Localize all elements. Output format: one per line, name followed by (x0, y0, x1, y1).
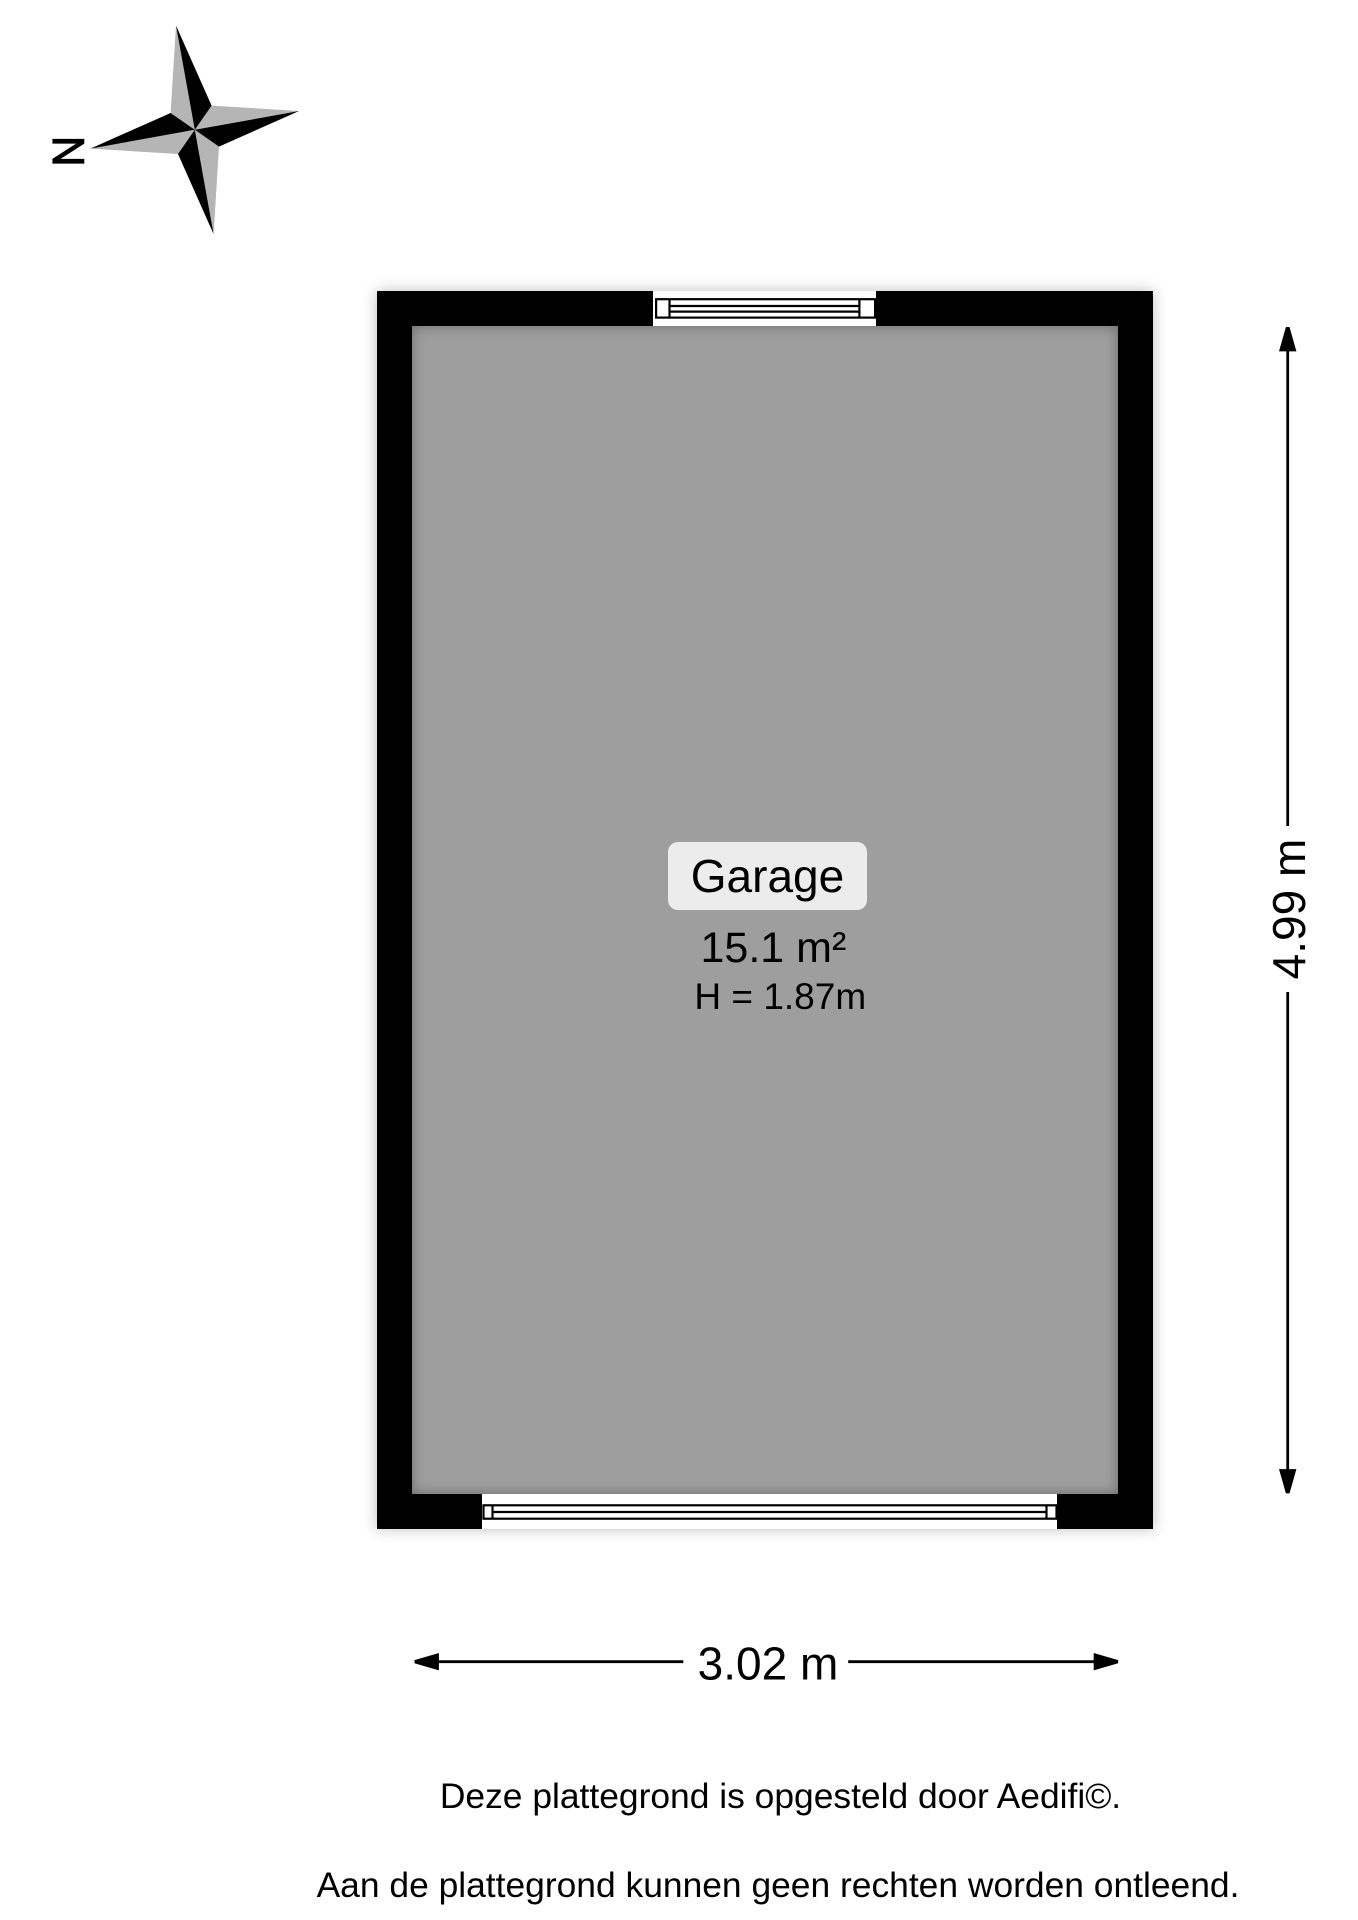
svg-text:4.99 m: 4.99 m (1263, 839, 1315, 980)
svg-text:3.02 m: 3.02 m (698, 1638, 839, 1690)
